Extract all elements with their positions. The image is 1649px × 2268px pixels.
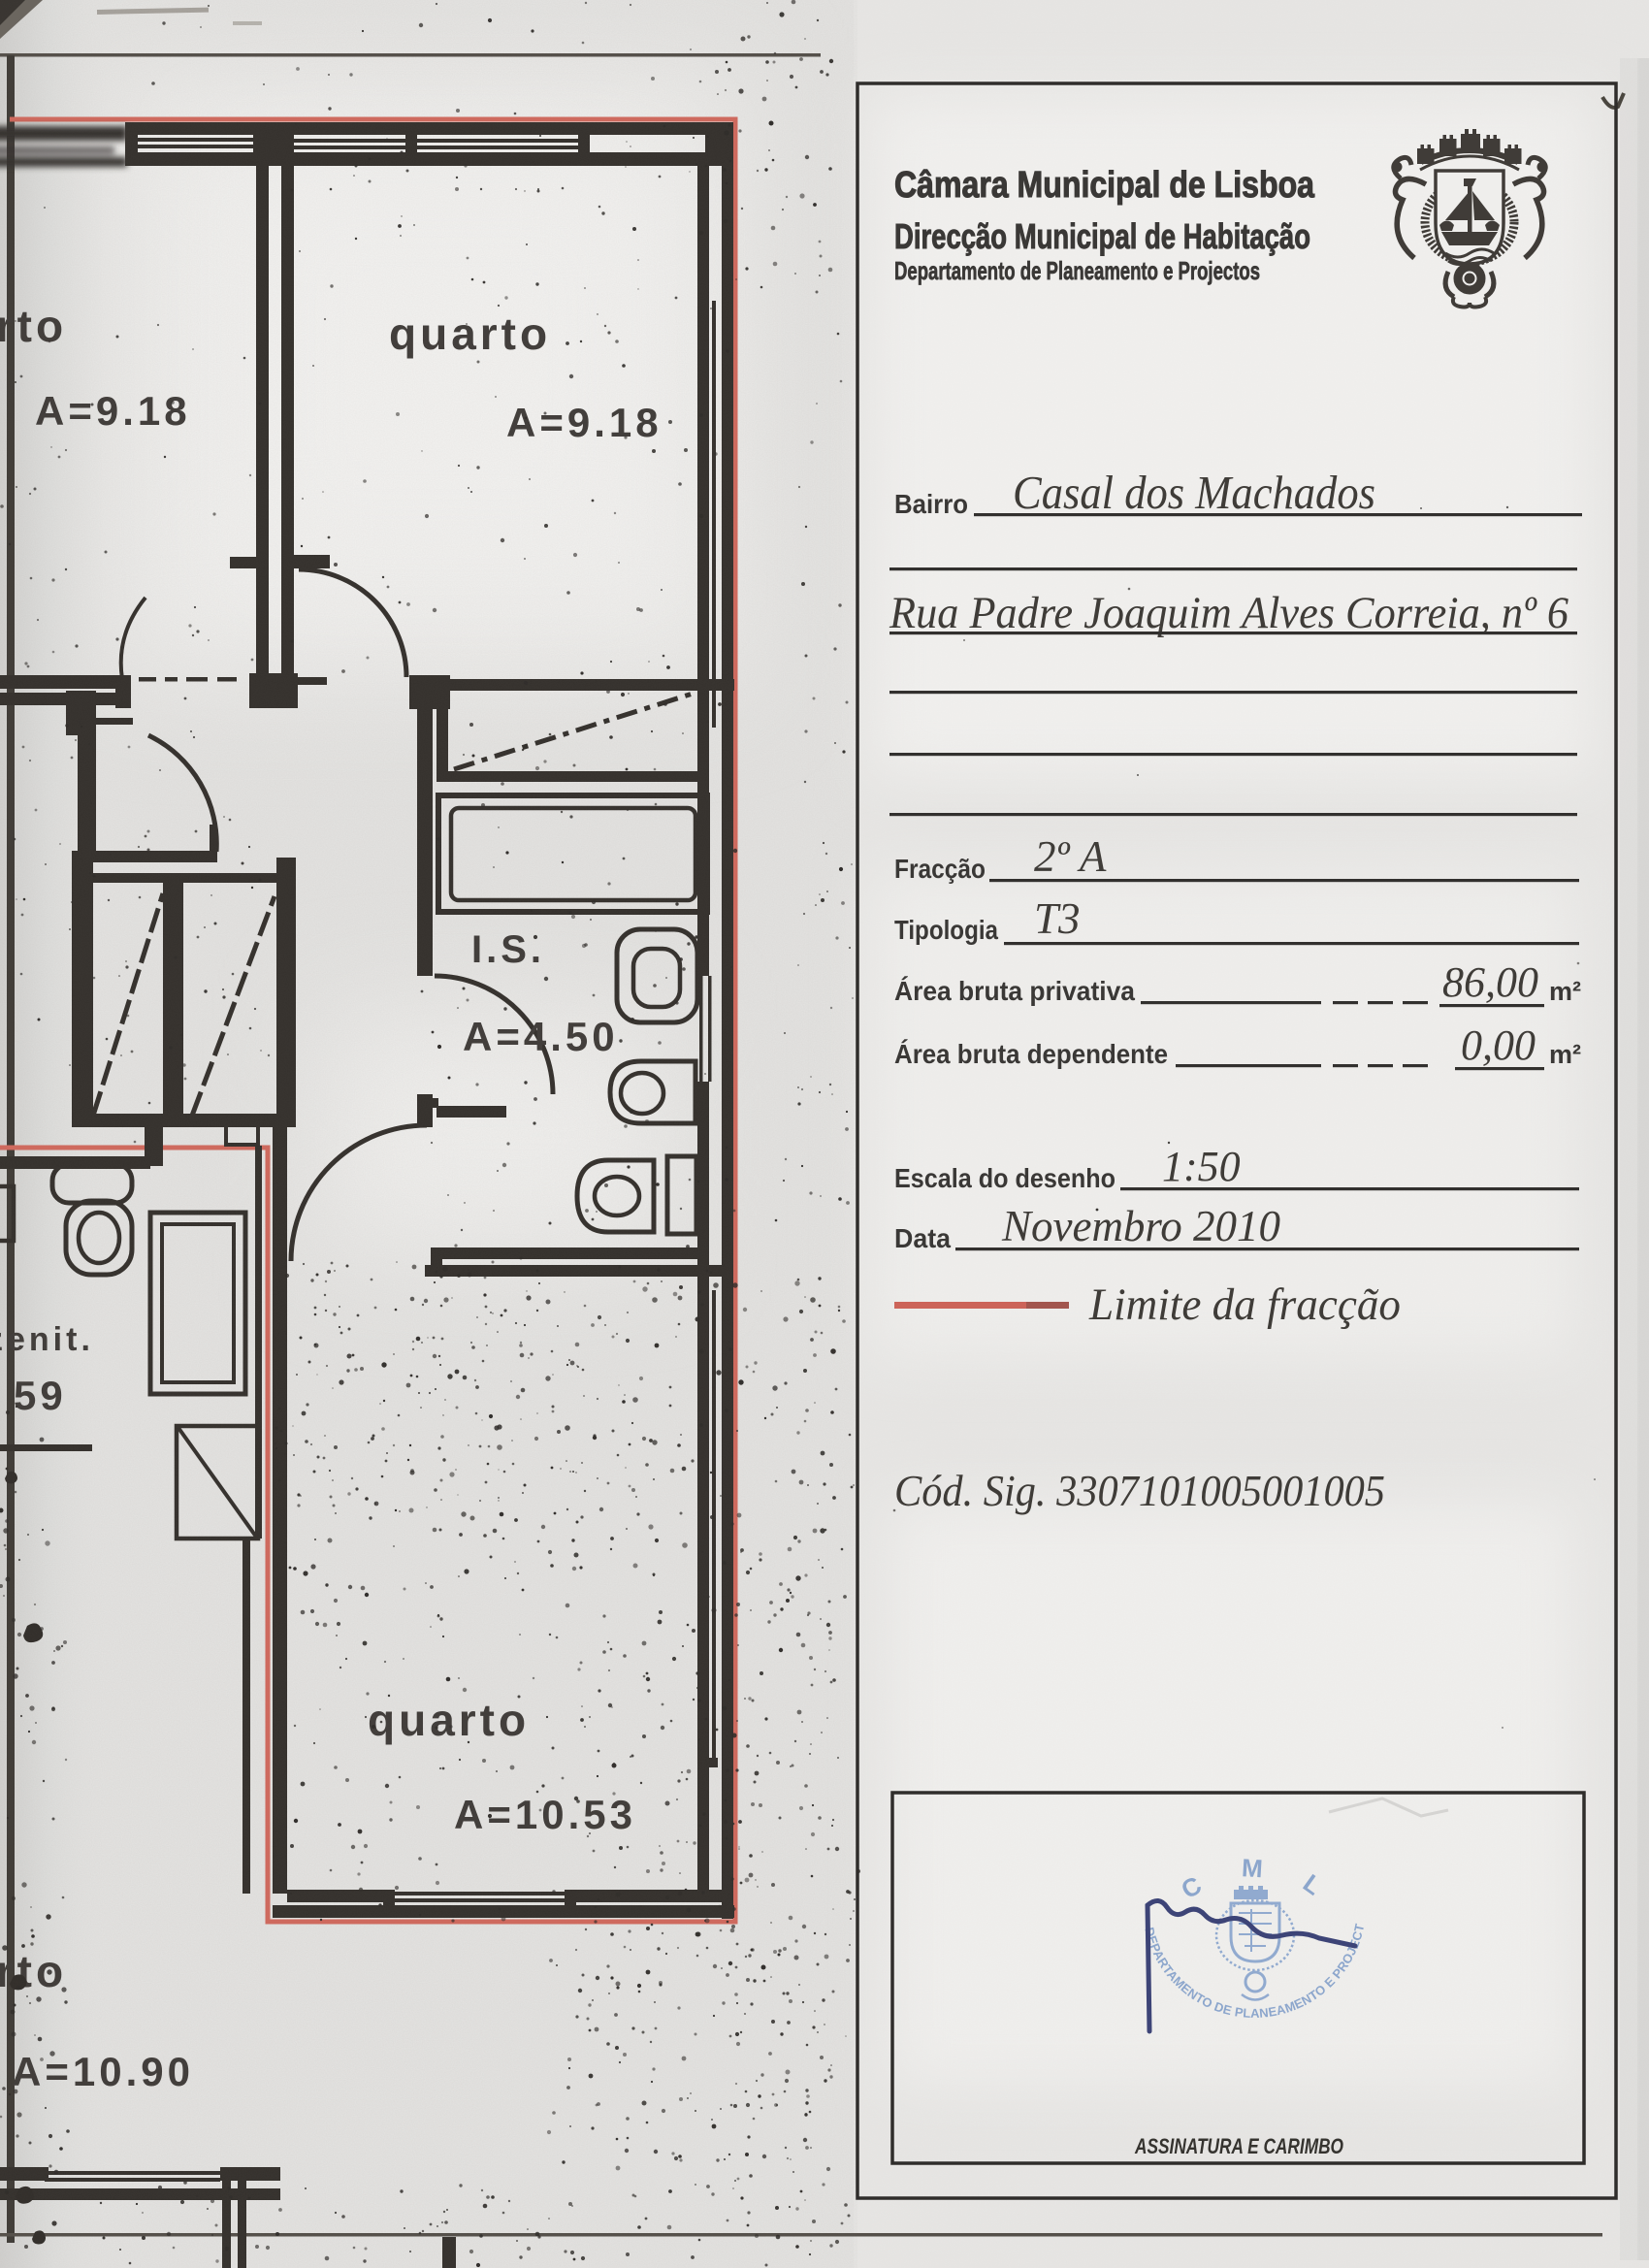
svg-text:Cód. Sig. 3307101005001005: Cód. Sig. 3307101005001005 bbox=[894, 1467, 1385, 1515]
svg-text:Área bruta privativa: Área bruta privativa bbox=[894, 976, 1135, 1006]
svg-text:Tipologia: Tipologia bbox=[894, 915, 998, 945]
svg-text:Departamento de Planeamento e: Departamento de Planeamento e Projectos bbox=[894, 256, 1260, 285]
svg-text:ASSINATURA E CARIMBO: ASSINATURA E CARIMBO bbox=[1134, 2134, 1343, 2158]
svg-text:2º A: 2º A bbox=[1034, 832, 1107, 881]
svg-text:86,00: 86,00 bbox=[1442, 958, 1538, 1006]
svg-text:Casal dos Machados: Casal dos Machados bbox=[1013, 466, 1375, 519]
svg-text:Área bruta dependente: Área bruta dependente bbox=[894, 1039, 1168, 1069]
svg-text:Bairro: Bairro bbox=[894, 489, 968, 519]
svg-text:Limite da fracção: Limite da fracção bbox=[1088, 1280, 1401, 1330]
svg-text:Data: Data bbox=[894, 1223, 951, 1253]
svg-text:Fracção: Fracção bbox=[894, 854, 986, 884]
svg-text:m²: m² bbox=[1549, 1040, 1581, 1069]
svg-text:Direcção Municipal de Habitaçã: Direcção Municipal de Habitação bbox=[894, 216, 1310, 256]
svg-text:Novembro 2010: Novembro 2010 bbox=[1001, 1202, 1280, 1250]
svg-text:Escala do desenho: Escala do desenho bbox=[894, 1163, 1115, 1193]
svg-text:Rua Padre Joaquim Alves Correi: Rua Padre Joaquim Alves Correia, nº 6 bbox=[889, 588, 1568, 638]
svg-text:0,00: 0,00 bbox=[1461, 1021, 1536, 1069]
svg-text:Câmara Municipal de Lisboa: Câmara Municipal de Lisboa bbox=[894, 165, 1315, 206]
svg-text:m²: m² bbox=[1549, 977, 1581, 1006]
svg-text:1:50: 1:50 bbox=[1162, 1143, 1241, 1190]
svg-text:T3: T3 bbox=[1034, 894, 1081, 943]
